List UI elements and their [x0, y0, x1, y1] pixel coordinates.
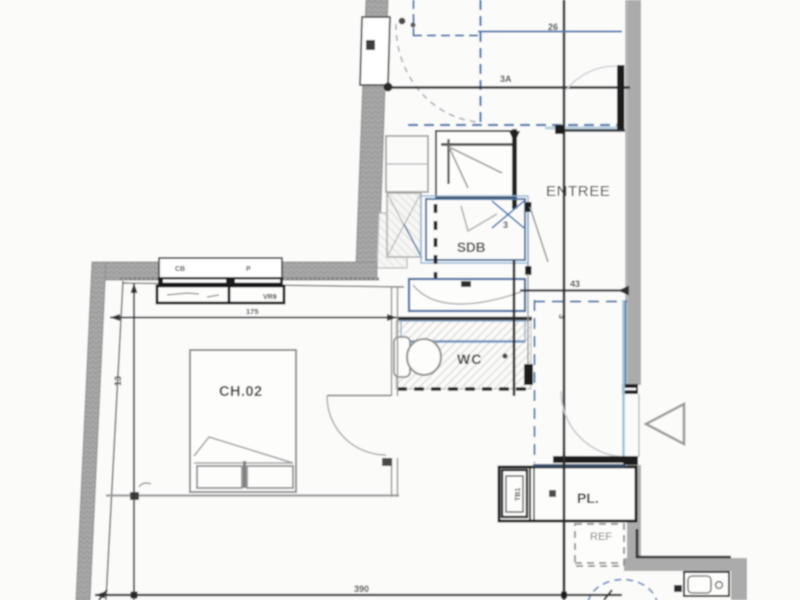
svg-text:CB: CB: [175, 266, 185, 273]
svg-text:3A: 3A: [500, 74, 512, 84]
svg-text:43: 43: [570, 279, 580, 289]
svg-text:13: 13: [113, 376, 123, 386]
svg-text:CH.02: CH.02: [219, 384, 263, 400]
svg-text:PL.: PL.: [577, 490, 599, 506]
svg-text:3: 3: [557, 314, 567, 319]
svg-text:SDB: SDB: [457, 240, 486, 255]
svg-text:26: 26: [548, 22, 558, 32]
svg-text:REF: REF: [590, 531, 612, 543]
svg-text:TB1: TB1: [515, 488, 522, 501]
svg-text:WC: WC: [457, 351, 482, 367]
svg-text:VR9: VR9: [263, 294, 277, 301]
svg-text:P: P: [246, 266, 251, 273]
svg-text:390: 390: [354, 584, 369, 594]
svg-text:175: 175: [246, 307, 259, 316]
svg-text:ENTREE: ENTREE: [546, 183, 610, 200]
svg-text:3: 3: [503, 220, 508, 230]
